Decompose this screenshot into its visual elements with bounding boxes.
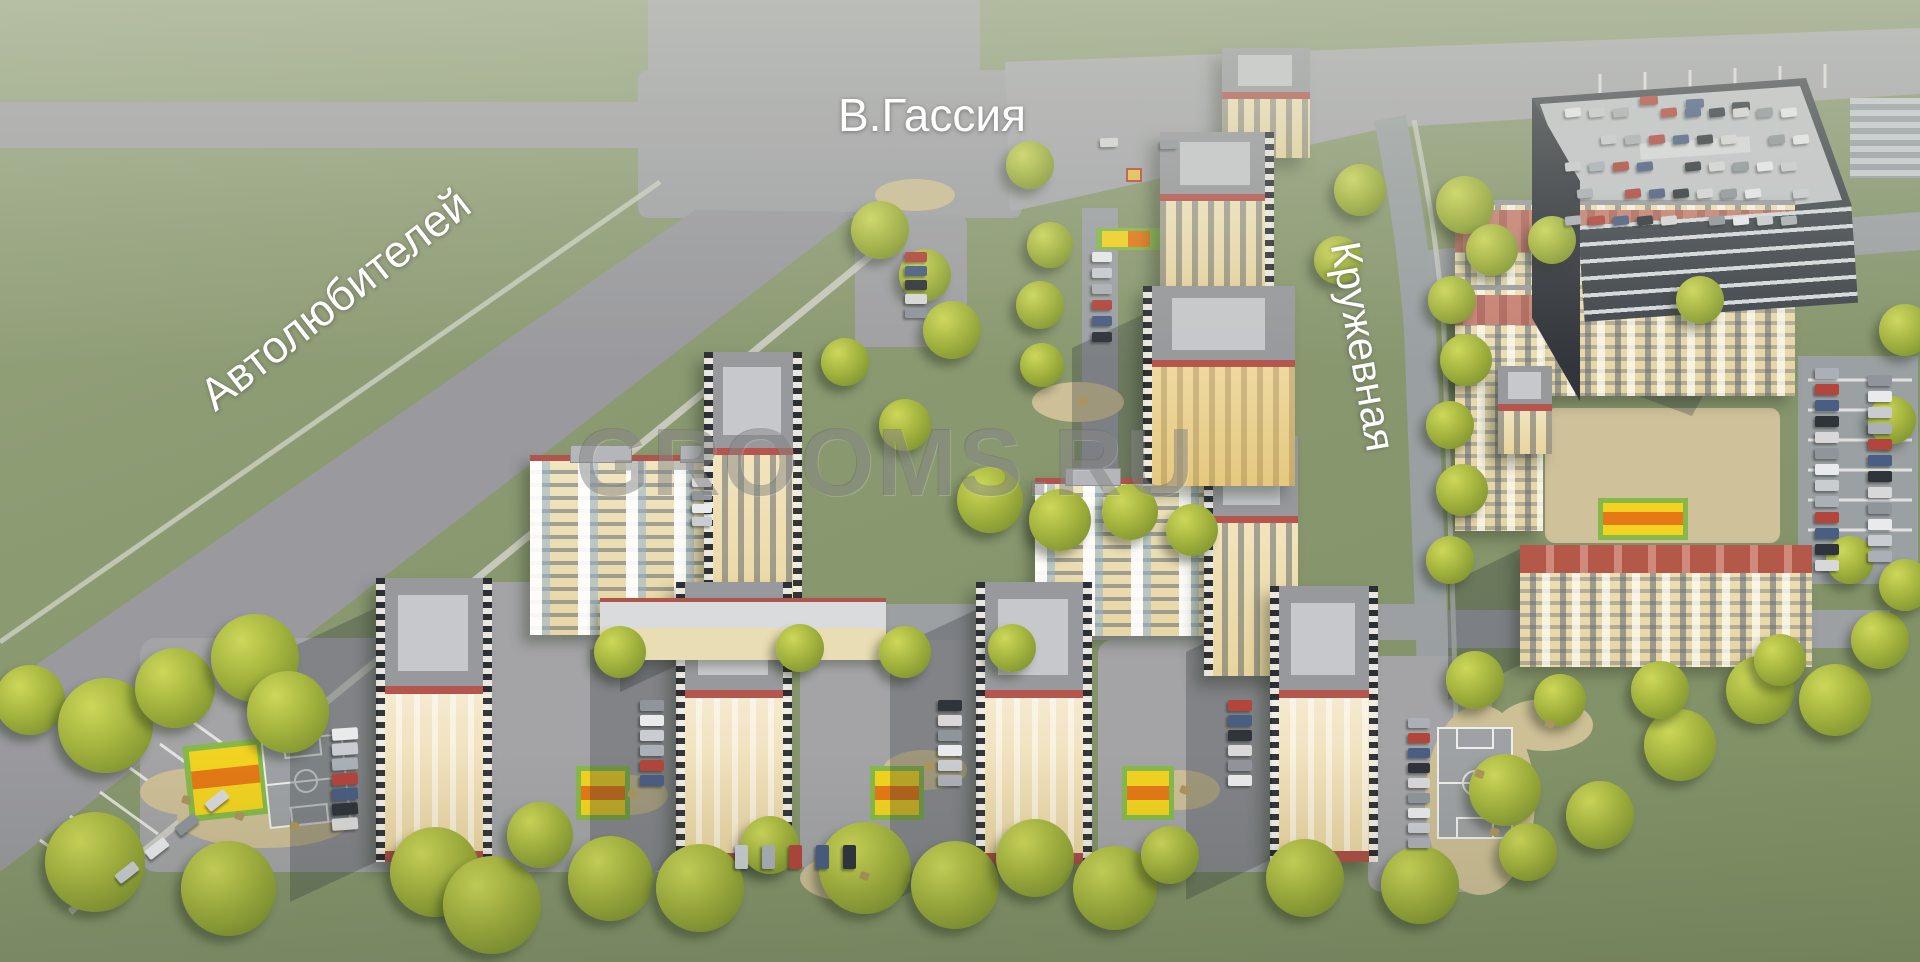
tower-roof [1145, 286, 1295, 360]
roof-panel [1172, 298, 1265, 350]
balcony-checker [1369, 586, 1378, 862]
roof-panel [398, 595, 467, 671]
balcony-checker [1083, 582, 1092, 864]
balcony-checker [1270, 586, 1279, 862]
parking-garage-front [1578, 207, 1858, 322]
corner-building [1850, 98, 1920, 178]
balcony-checker [976, 582, 985, 864]
tower-facade [978, 690, 1090, 864]
striped-court-complex [1598, 498, 1688, 540]
tower-roof [1272, 586, 1376, 690]
hipped-roof-band [1520, 545, 1812, 573]
striped-court-1 [182, 738, 270, 822]
tower-facade [1160, 194, 1272, 292]
road-west [0, 102, 655, 148]
tower-facade [678, 690, 790, 864]
tower-row-1 [378, 578, 490, 862]
facade-band [1455, 295, 1543, 325]
tower-facade [1272, 690, 1376, 862]
tower-roof [1498, 366, 1552, 404]
tower-roof [378, 578, 490, 686]
roof-panel [1238, 55, 1293, 86]
striped-court-4 [1122, 766, 1174, 820]
complex-slab-south [1520, 545, 1812, 667]
roof-panel [1291, 603, 1355, 676]
complex-tower-small [1498, 366, 1552, 454]
tower-facade [378, 686, 490, 862]
roof-panel [1508, 372, 1541, 399]
balcony-checker [1265, 132, 1274, 292]
chain-tower-b [1160, 132, 1272, 292]
low-building [600, 598, 886, 660]
tower-row-4 [1272, 586, 1376, 862]
street-label-v-gassiya: В.Гассия [838, 88, 1026, 142]
basketball-court-2 [1438, 728, 1512, 838]
roof-panel [998, 599, 1067, 675]
balcony-checker [483, 578, 492, 862]
tower-roof [978, 582, 1090, 690]
tower-facade [1498, 404, 1552, 454]
roof-panel [1180, 142, 1249, 185]
tower-row-3 [978, 582, 1090, 864]
site-plan-render: В.Гассия Автолюбителей Кружевная GROOMS.… [0, 0, 1920, 962]
tower-roof [1222, 48, 1310, 92]
watermark: GROOMS.RU [575, 408, 1265, 518]
pad-junction-parking [855, 215, 967, 347]
balcony-checker [376, 578, 385, 862]
tower-roof [1160, 132, 1272, 194]
playground-kiosk [1126, 168, 1142, 182]
